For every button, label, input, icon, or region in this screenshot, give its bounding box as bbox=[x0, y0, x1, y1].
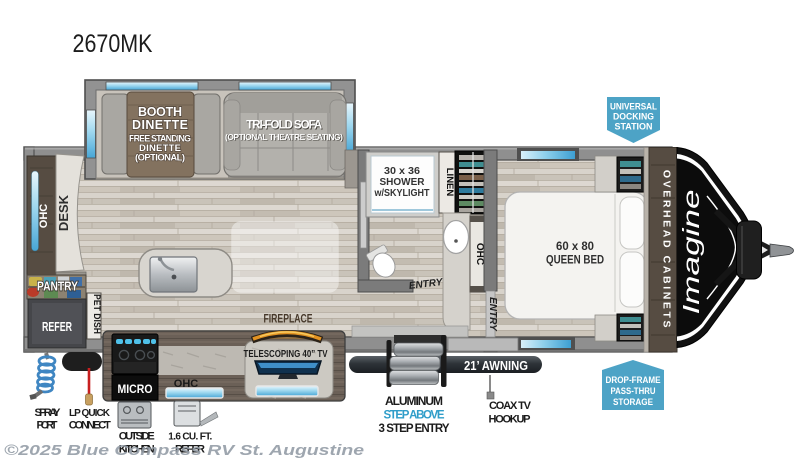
svg-text:SHOWER: SHOWER bbox=[380, 177, 426, 188]
svg-text:CONNECT: CONNECT bbox=[69, 420, 111, 432]
svg-text:1.6 CU. FT.: 1.6 CU. FT. bbox=[168, 432, 212, 443]
svg-text:FIREPLACE: FIREPLACE bbox=[264, 314, 313, 326]
svg-text:SPRAY: SPRAY bbox=[35, 407, 62, 419]
svg-text:30 x 36: 30 x 36 bbox=[384, 166, 420, 177]
svg-text:COAX TV: COAX TV bbox=[489, 400, 532, 412]
svg-text:LP QUICK: LP QUICK bbox=[69, 408, 111, 419]
svg-text:©2025 Blue Compass RV St. Augu: ©2025 Blue Compass RV St. Augustine bbox=[4, 443, 364, 459]
svg-text:TRI-FOLD SOFA: TRI-FOLD SOFA bbox=[246, 120, 322, 132]
svg-text:(OPTIONAL THEATRE SEATING): (OPTIONAL THEATRE SEATING) bbox=[225, 132, 343, 142]
svg-text:LINEN: LINEN bbox=[444, 168, 455, 197]
svg-text:TELESCOPING 40” TV: TELESCOPING 40” TV bbox=[244, 349, 328, 360]
svg-text:OHC: OHC bbox=[38, 204, 50, 229]
svg-text:PASS-THRU: PASS-THRU bbox=[611, 386, 656, 397]
svg-text:BOOTH: BOOTH bbox=[138, 105, 182, 119]
svg-text:60 x 80: 60 x 80 bbox=[556, 239, 594, 253]
svg-text:ALUMINUM: ALUMINUM bbox=[385, 394, 443, 408]
svg-text:FREE STANDING: FREE STANDING bbox=[129, 134, 191, 144]
svg-text:w/SKYLIGHT: w/SKYLIGHT bbox=[374, 188, 430, 199]
svg-text:STORAGE: STORAGE bbox=[613, 397, 653, 408]
svg-text:STATION: STATION bbox=[615, 122, 653, 133]
svg-text:STEP ABOVE: STEP ABOVE bbox=[384, 410, 445, 422]
svg-text:(OPTIONAL): (OPTIONAL) bbox=[135, 153, 185, 164]
svg-text:HOOKUP: HOOKUP bbox=[489, 414, 531, 426]
svg-text:OVERHEAD CABINETS: OVERHEAD CABINETS bbox=[661, 170, 673, 330]
svg-text:PORT: PORT bbox=[37, 420, 58, 432]
svg-text:DINETTE: DINETTE bbox=[132, 118, 188, 132]
svg-text:Imagine: Imagine bbox=[678, 190, 704, 315]
svg-text:REFER: REFER bbox=[42, 320, 72, 334]
svg-text:3 STEP ENTRY: 3 STEP ENTRY bbox=[379, 423, 450, 435]
svg-text:OUTSIDE: OUTSIDE bbox=[119, 431, 155, 443]
svg-text:OHC: OHC bbox=[474, 243, 485, 265]
svg-text:2670MK: 2670MK bbox=[73, 30, 153, 58]
svg-text:PANTRY: PANTRY bbox=[37, 279, 78, 294]
svg-text:PET DISH: PET DISH bbox=[92, 294, 102, 334]
svg-text:QUEEN BED: QUEEN BED bbox=[546, 253, 604, 267]
svg-text:DROP-FRAME: DROP-FRAME bbox=[606, 375, 661, 386]
svg-text:DESK: DESK bbox=[56, 194, 71, 231]
svg-text:ENTRY: ENTRY bbox=[487, 297, 498, 332]
svg-text:21’ AWNING: 21’ AWNING bbox=[464, 359, 528, 373]
svg-text:MICRO: MICRO bbox=[118, 384, 153, 396]
